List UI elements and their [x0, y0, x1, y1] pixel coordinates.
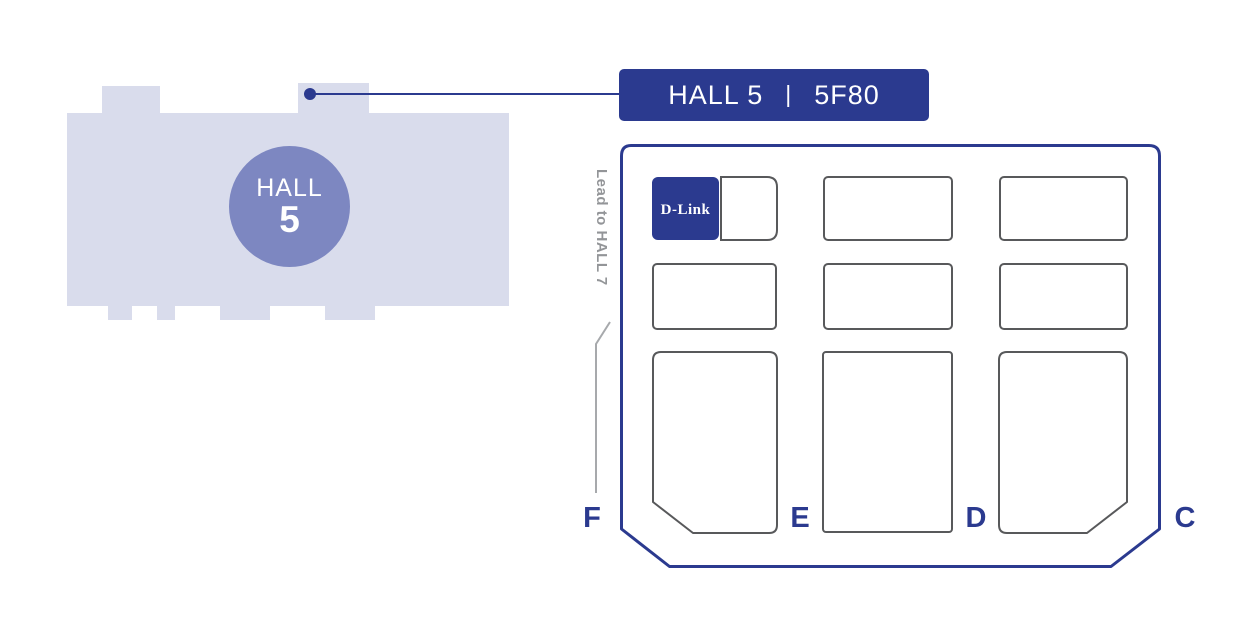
booth-row3-col3	[999, 352, 1127, 533]
booth-row3-col2	[823, 352, 952, 532]
callout-separator: |	[785, 81, 792, 108]
hall-silhouette-bottom-tab-3	[220, 306, 270, 320]
booth-callout-banner: HALL 5 | 5F80	[619, 69, 929, 121]
hall-silhouette-top-tab-1	[102, 86, 160, 116]
dlink-logo: D-Link	[661, 202, 711, 218]
callout-connector-line	[313, 93, 620, 95]
booth-row3-col1	[653, 352, 777, 533]
aisle-label-f: F	[577, 503, 607, 533]
booth-row1-col2	[824, 177, 952, 240]
booth-row2-col1	[653, 264, 776, 329]
hall-silhouette-bottom-tab-1	[108, 306, 132, 320]
hall-badge-label: HALL	[256, 175, 323, 201]
aisle-label-c: C	[1170, 503, 1200, 533]
direction-arrow-icon	[589, 316, 615, 498]
callout-booth-number: 5F80	[814, 80, 880, 111]
hall-silhouette-bottom-tab-2	[157, 306, 175, 320]
booth-row1-col1b	[721, 177, 777, 240]
hall-number-badge: HALL 5	[229, 146, 350, 267]
booth-row2-col3	[1000, 264, 1127, 329]
booth-row1-col3	[1000, 177, 1127, 240]
aisle-label-d: D	[961, 503, 991, 533]
hall5-floor-plan: D-Link	[620, 144, 1161, 568]
callout-hall-text: HALL 5	[668, 80, 763, 111]
lead-to-hall7-label: Lead to HALL 7	[591, 169, 610, 319]
booth-row2-col2	[824, 264, 952, 329]
hall-badge-number: 5	[279, 201, 300, 238]
aisle-label-e: E	[785, 503, 815, 533]
hall-silhouette-bottom-tab-4	[325, 306, 375, 320]
